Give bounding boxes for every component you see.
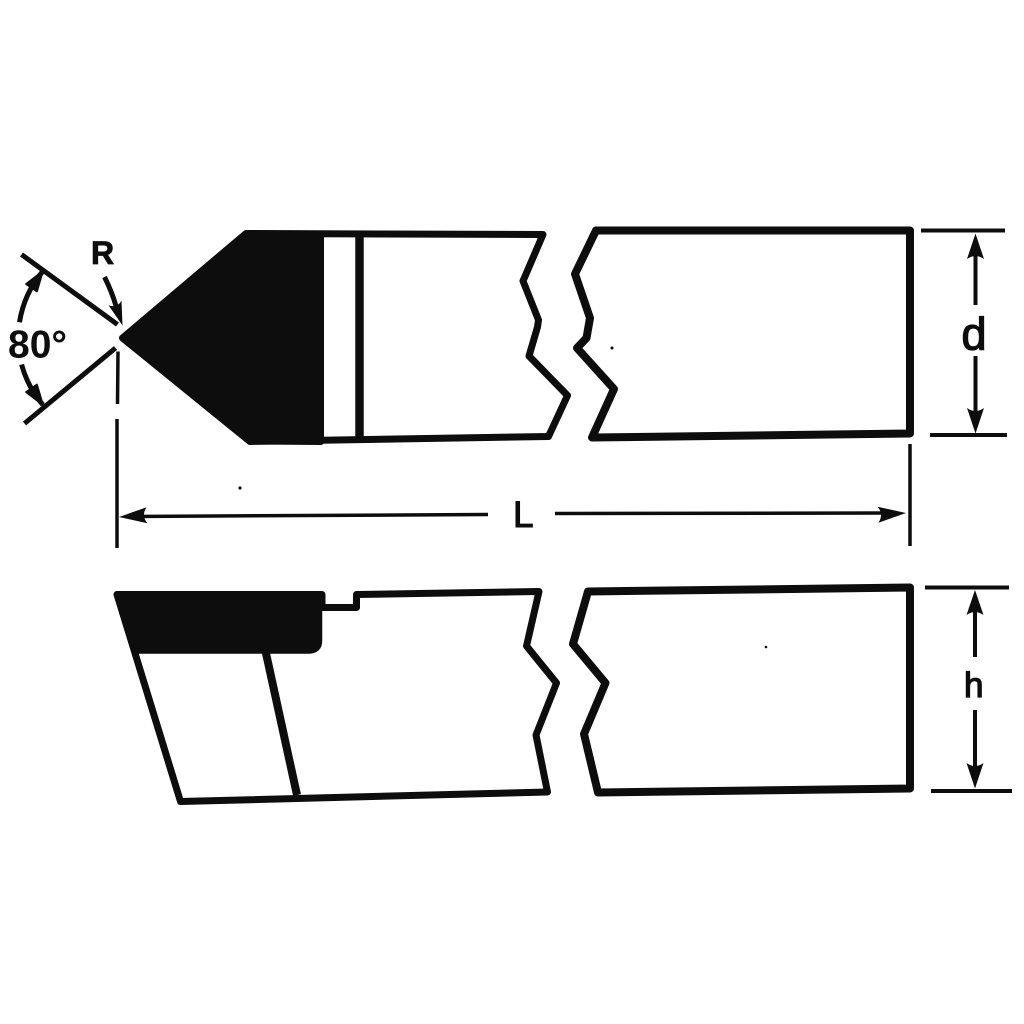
- svg-text:d: d: [962, 309, 987, 360]
- svg-text:80°: 80°: [8, 324, 67, 367]
- svg-text:R: R: [91, 235, 114, 271]
- svg-text:h: h: [964, 666, 983, 705]
- svg-text:L: L: [513, 494, 534, 535]
